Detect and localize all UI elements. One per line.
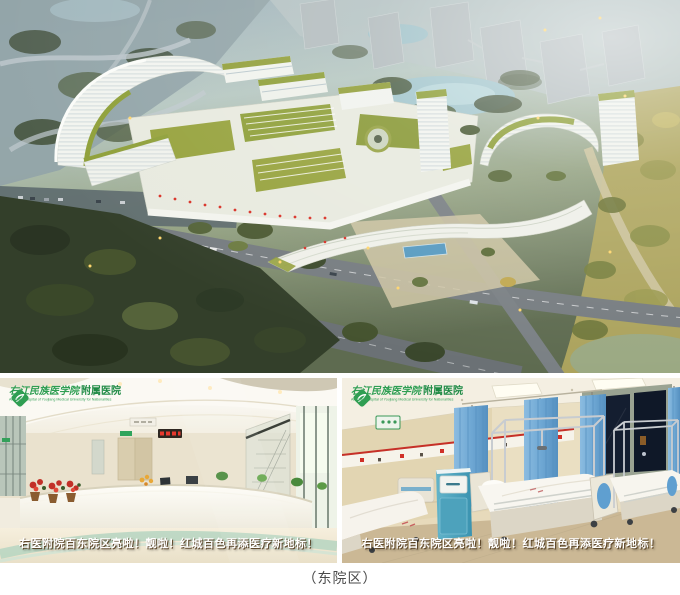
hospital-logo: 右江民族医学院附属医院 Affiliated Hospital of Youji… xyxy=(9,387,237,406)
night-light-dot xyxy=(642,452,646,456)
figure-caption: （东院区） xyxy=(0,568,680,588)
ward-photo: 右江民族医学院附属医院 Affiliated Hospital of Youji… xyxy=(342,378,680,563)
trapeze-handle xyxy=(537,446,547,450)
desk-monitor xyxy=(186,476,198,484)
logo-en-text: Affiliated Hospital of Youjiang Medical … xyxy=(9,398,111,402)
photo-banner-text: 右医附院百东院区亮啦！靓啦！红城百色再添医疗新地标！ xyxy=(342,535,680,551)
led-display-sign xyxy=(158,429,182,438)
hospital-logo: 右江民族医学院附属医院 Affiliated Hospital of Youji… xyxy=(351,387,579,406)
photo-banner-text: 右医附院百东院区亮啦！靓啦！红城百色再添医疗新地标！ xyxy=(0,535,337,551)
exit-sign xyxy=(2,438,10,442)
footboard-panel xyxy=(597,483,611,509)
lobby-photo: 右江民族医学院附属医院 Affiliated Hospital of Youji… xyxy=(0,378,337,563)
logo-cn-text: 右江民族医学院附属医院 xyxy=(351,387,579,397)
desk-monitor xyxy=(160,477,170,485)
article-figure: 右江民族医学院附属医院 Affiliated Hospital of Youji… xyxy=(0,0,680,595)
pulley-block xyxy=(640,436,646,445)
exit-sign xyxy=(120,431,132,436)
medical-gas-panel xyxy=(376,416,400,429)
aerial-illustration xyxy=(0,0,680,373)
logo-en-text: Affiliated Hospital of Youjiang Medical … xyxy=(351,398,453,402)
logo-cn-suffix: 附属医院 xyxy=(423,386,463,397)
aerial-campus-rendering xyxy=(0,0,680,373)
bedside-cabinet xyxy=(436,468,472,540)
footboard-panel xyxy=(667,476,677,496)
lobby-left-window xyxy=(0,416,26,496)
sun-haze-overlay xyxy=(0,0,680,373)
logo-cn-suffix: 附属医院 xyxy=(81,386,121,397)
logo-cn-text: 右江民族医学院附属医院 xyxy=(9,387,237,397)
